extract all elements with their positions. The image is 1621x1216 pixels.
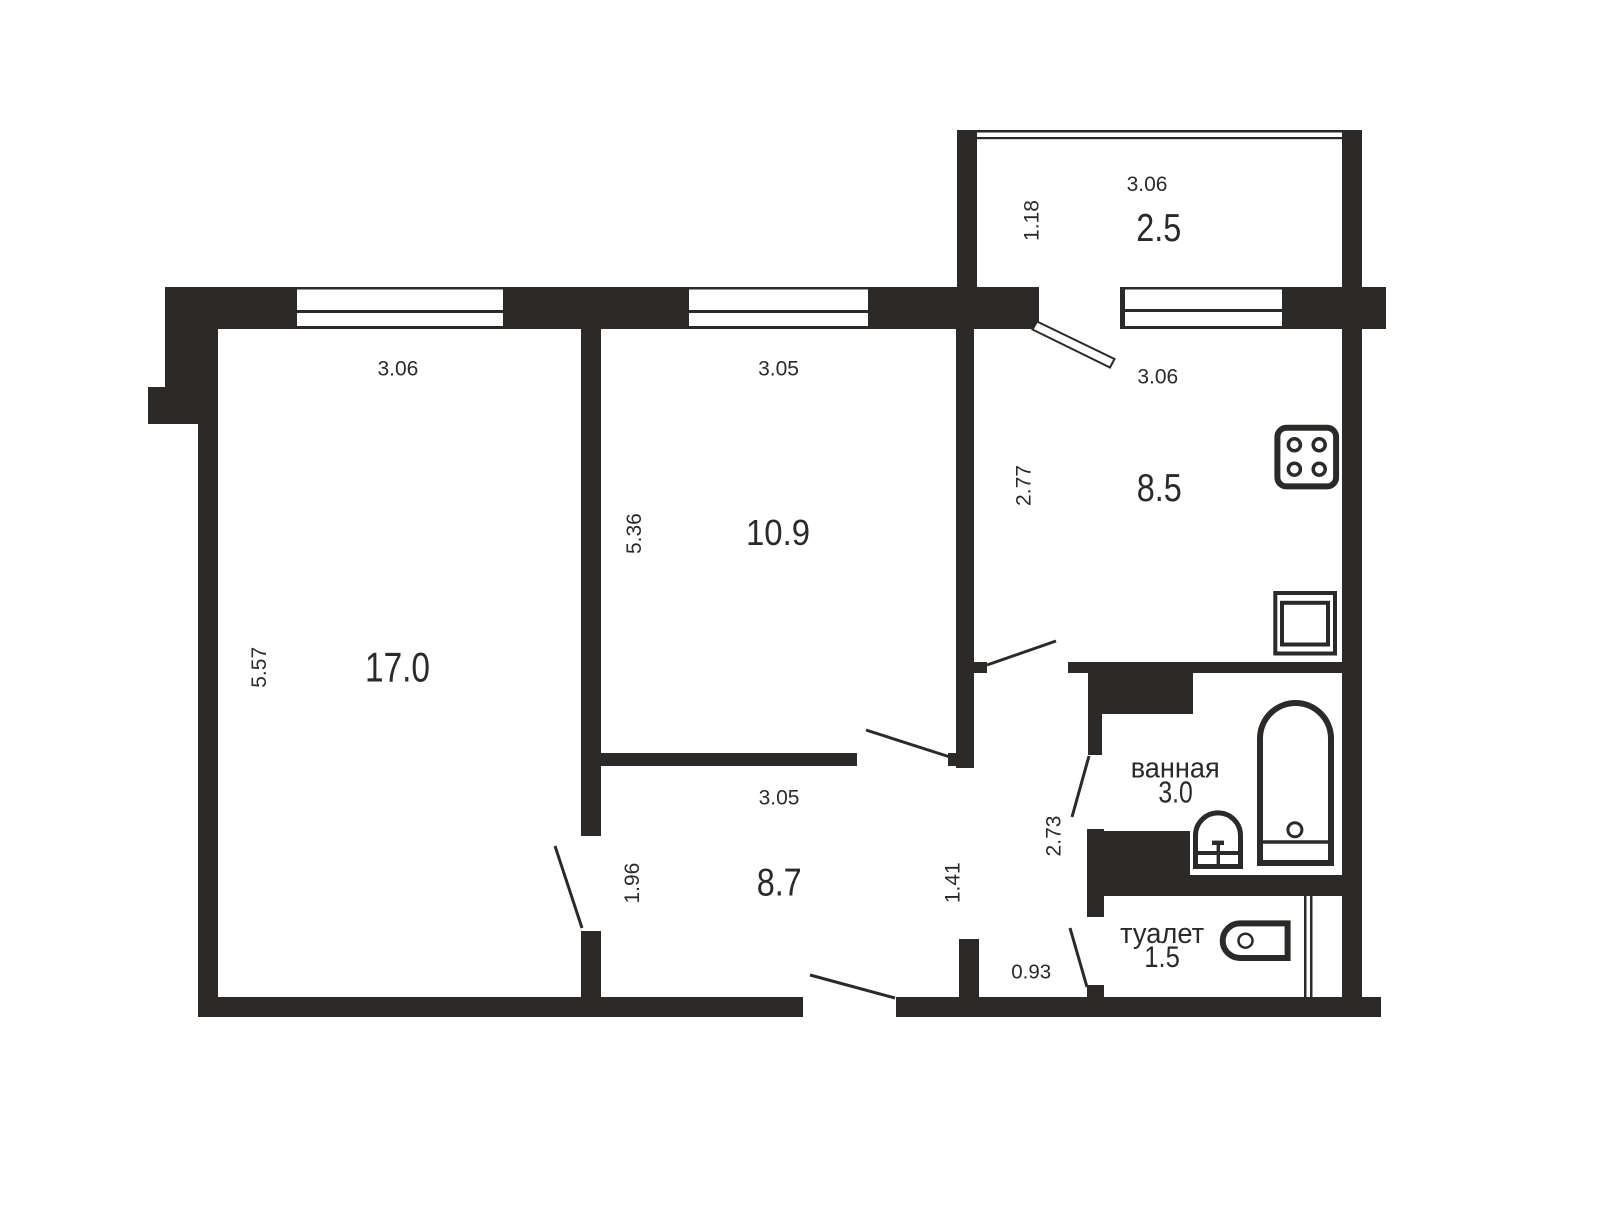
svg-text:0.93: 0.93 — [1011, 960, 1051, 983]
svg-text:3.06: 3.06 — [377, 358, 418, 381]
svg-text:3.0: 3.0 — [1158, 775, 1193, 810]
svg-text:8.5: 8.5 — [1137, 467, 1182, 510]
svg-text:5.57: 5.57 — [248, 647, 271, 688]
svg-text:3.05: 3.05 — [759, 787, 800, 810]
svg-text:1.5: 1.5 — [1144, 941, 1180, 974]
svg-text:17.0: 17.0 — [365, 644, 430, 691]
svg-text:1.41: 1.41 — [942, 862, 965, 903]
svg-text:3.06: 3.06 — [1137, 365, 1178, 388]
svg-text:3.05: 3.05 — [758, 358, 799, 381]
svg-text:1.96: 1.96 — [621, 863, 644, 904]
svg-text:8.7: 8.7 — [757, 862, 802, 905]
svg-text:5.36: 5.36 — [623, 513, 646, 554]
svg-text:1.18: 1.18 — [1021, 200, 1044, 241]
svg-text:3.06: 3.06 — [1127, 173, 1168, 196]
svg-text:2.77: 2.77 — [1013, 465, 1036, 506]
svg-text:10.9: 10.9 — [746, 512, 810, 553]
svg-text:2.73: 2.73 — [1043, 816, 1066, 857]
svg-text:2.5: 2.5 — [1136, 207, 1181, 250]
